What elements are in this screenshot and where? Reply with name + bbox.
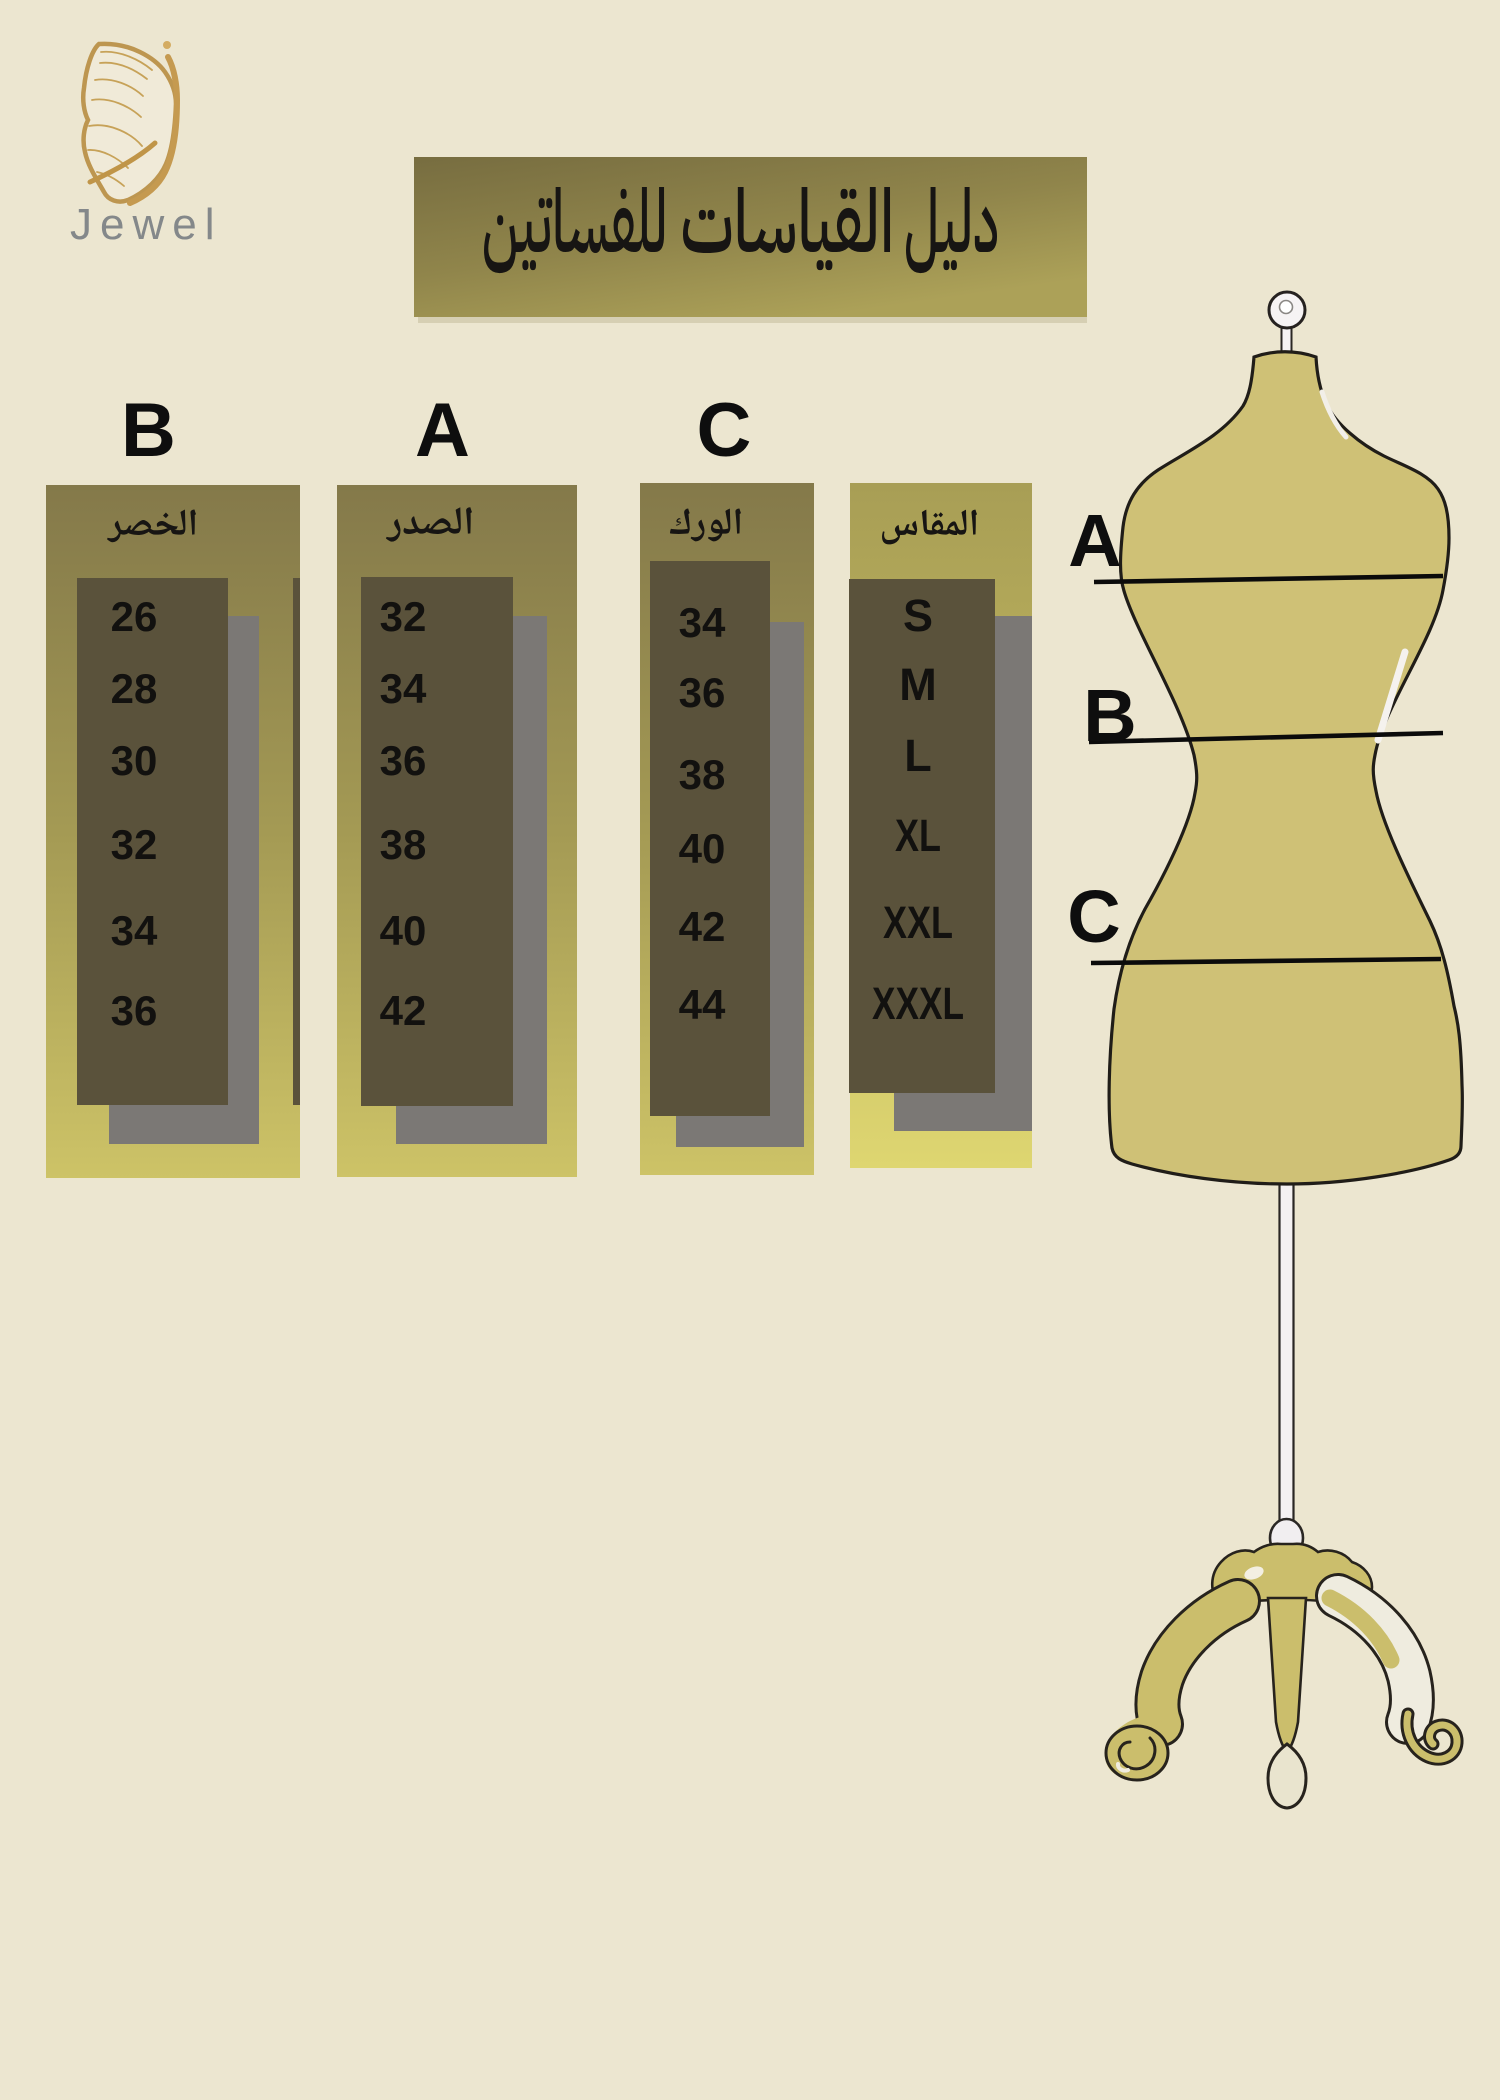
svg-text:XXXL: XXXL <box>872 978 964 1029</box>
svg-text:36: 36 <box>111 987 158 1034</box>
svg-text:C: C <box>697 388 752 473</box>
svg-text:C: C <box>1067 875 1120 958</box>
svg-text:XXL: XXL <box>883 897 953 948</box>
svg-text:L: L <box>904 730 932 781</box>
svg-text:S: S <box>903 590 933 641</box>
svg-text:36: 36 <box>679 669 726 716</box>
svg-text:42: 42 <box>380 987 427 1034</box>
svg-text:44: 44 <box>679 981 726 1028</box>
svg-text:A: A <box>415 388 470 473</box>
svg-text:34: 34 <box>111 907 158 954</box>
svg-text:40: 40 <box>380 907 427 954</box>
svg-text:40: 40 <box>679 825 726 872</box>
svg-text:34: 34 <box>679 599 726 646</box>
svg-text:38: 38 <box>380 821 427 868</box>
svg-text:XL: XL <box>895 810 941 861</box>
svg-text:26: 26 <box>111 593 158 640</box>
svg-text:38: 38 <box>679 751 726 798</box>
svg-text:B: B <box>121 388 176 473</box>
svg-text:30: 30 <box>111 737 158 784</box>
svg-text:34: 34 <box>380 665 427 712</box>
svg-text:42: 42 <box>679 903 726 950</box>
svg-text:36: 36 <box>380 737 427 784</box>
svg-text:Jewel: Jewel <box>70 200 223 249</box>
svg-text:B: B <box>1083 674 1136 757</box>
svg-text:32: 32 <box>380 593 427 640</box>
svg-text:28: 28 <box>111 665 158 712</box>
svg-text:A: A <box>1068 499 1121 582</box>
svg-text:32: 32 <box>111 821 158 868</box>
svg-text:M: M <box>899 659 937 710</box>
